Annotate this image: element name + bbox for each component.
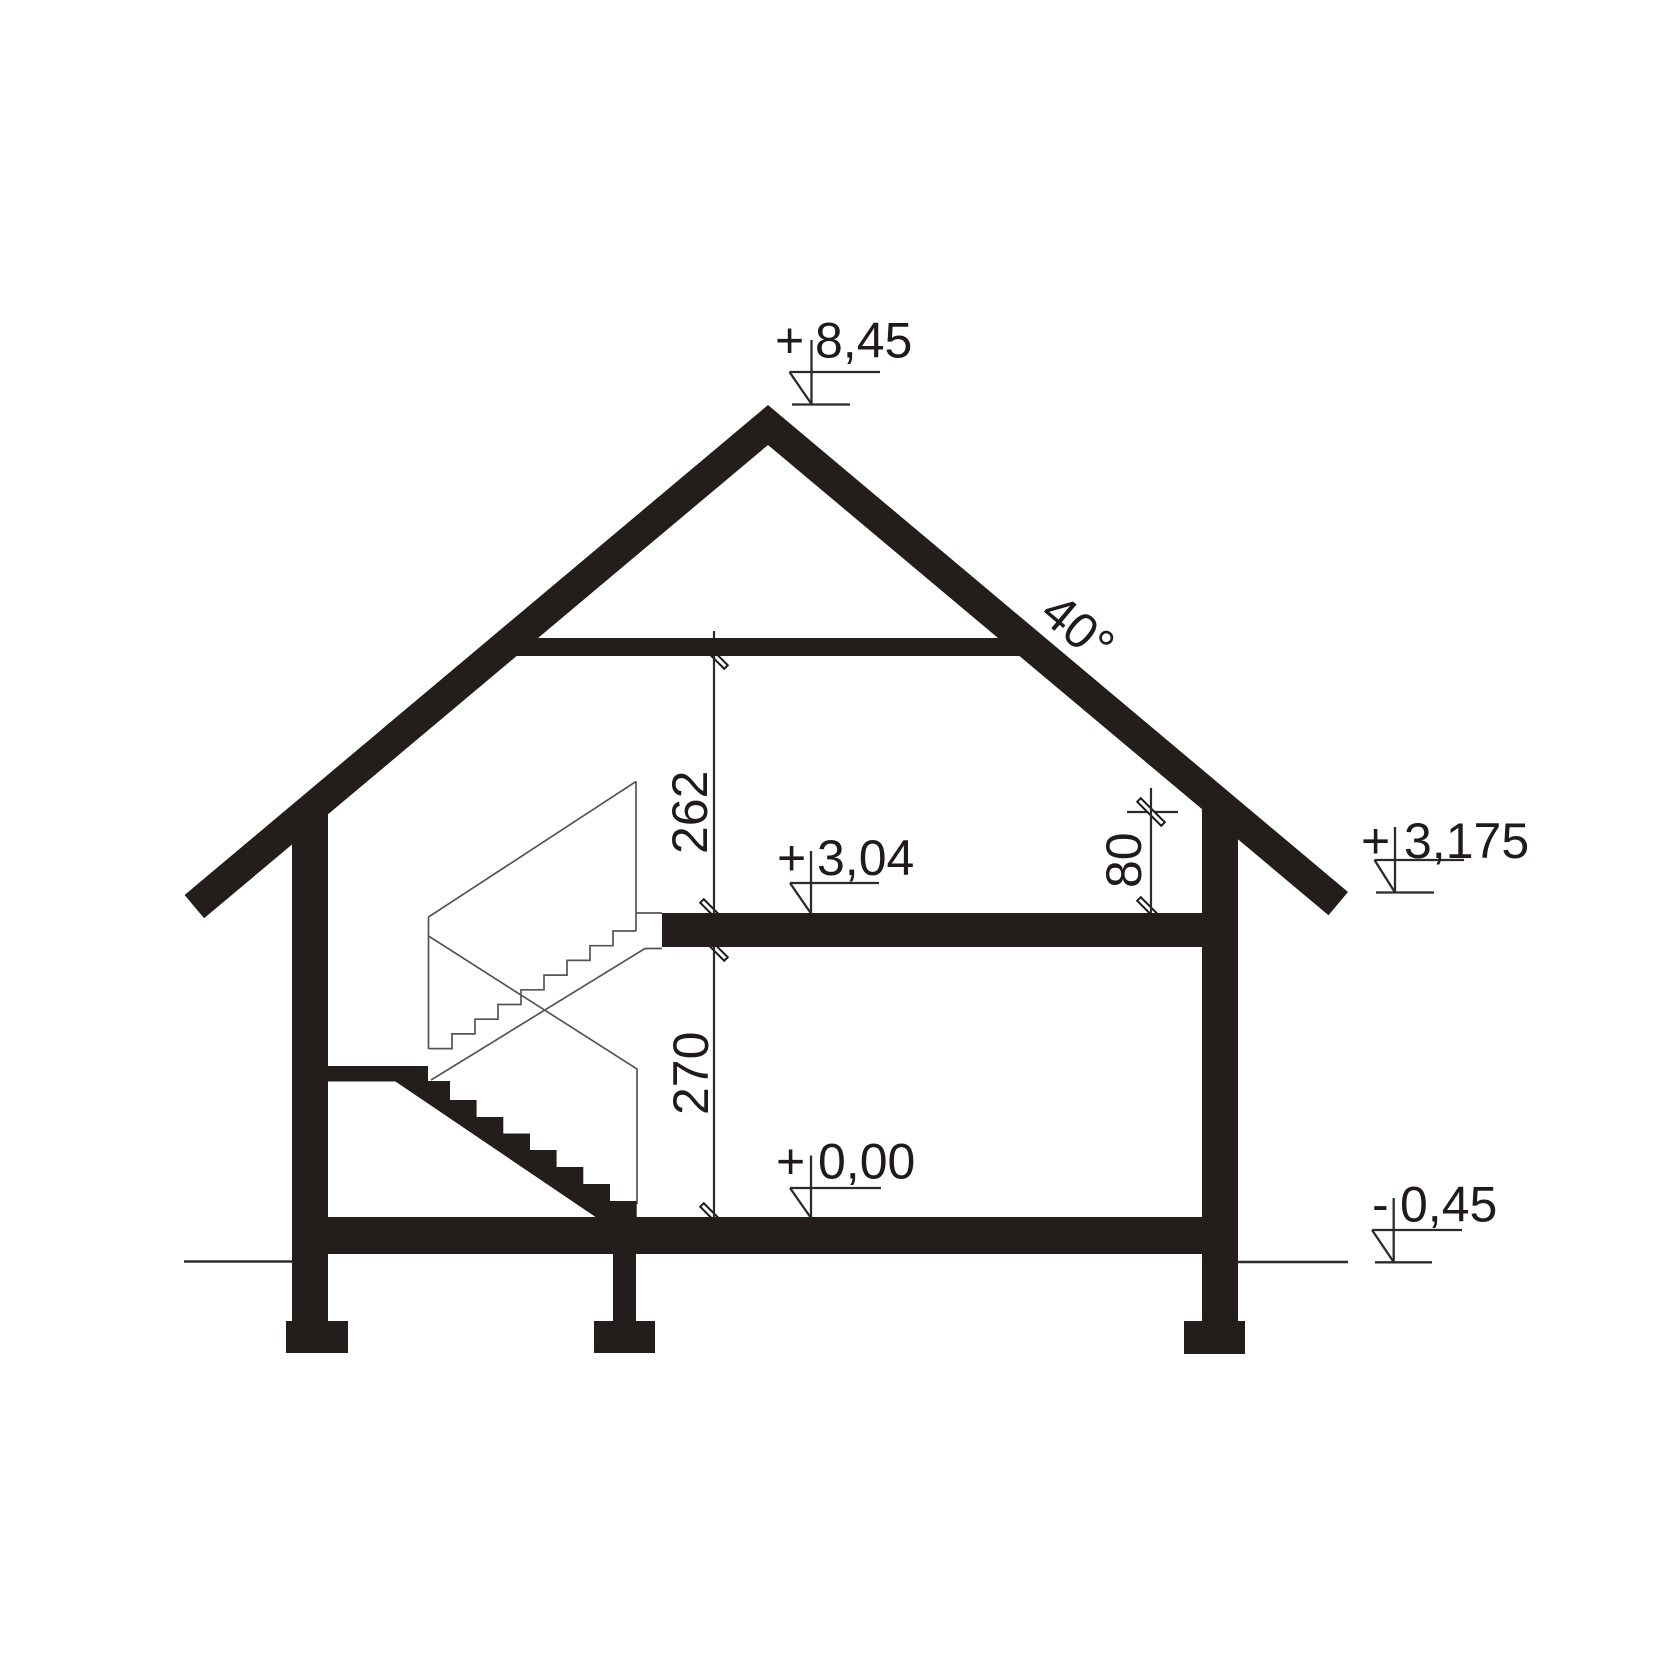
svg-text:0,45: 0,45 (1400, 1177, 1497, 1233)
svg-text:8,45: 8,45 (815, 313, 912, 369)
svg-text:262: 262 (662, 771, 718, 854)
svg-text:3,175: 3,175 (1404, 813, 1529, 869)
svg-text:80: 80 (1096, 832, 1152, 888)
svg-text:270: 270 (663, 1032, 719, 1115)
svg-text:+: + (777, 830, 806, 886)
svg-text:-: - (1372, 1177, 1389, 1233)
svg-text:0,00: 0,00 (818, 1134, 915, 1190)
svg-text:+: + (1361, 813, 1390, 869)
svg-text:3,04: 3,04 (817, 830, 914, 886)
svg-text:+: + (775, 313, 804, 369)
svg-text:+: + (776, 1134, 805, 1190)
